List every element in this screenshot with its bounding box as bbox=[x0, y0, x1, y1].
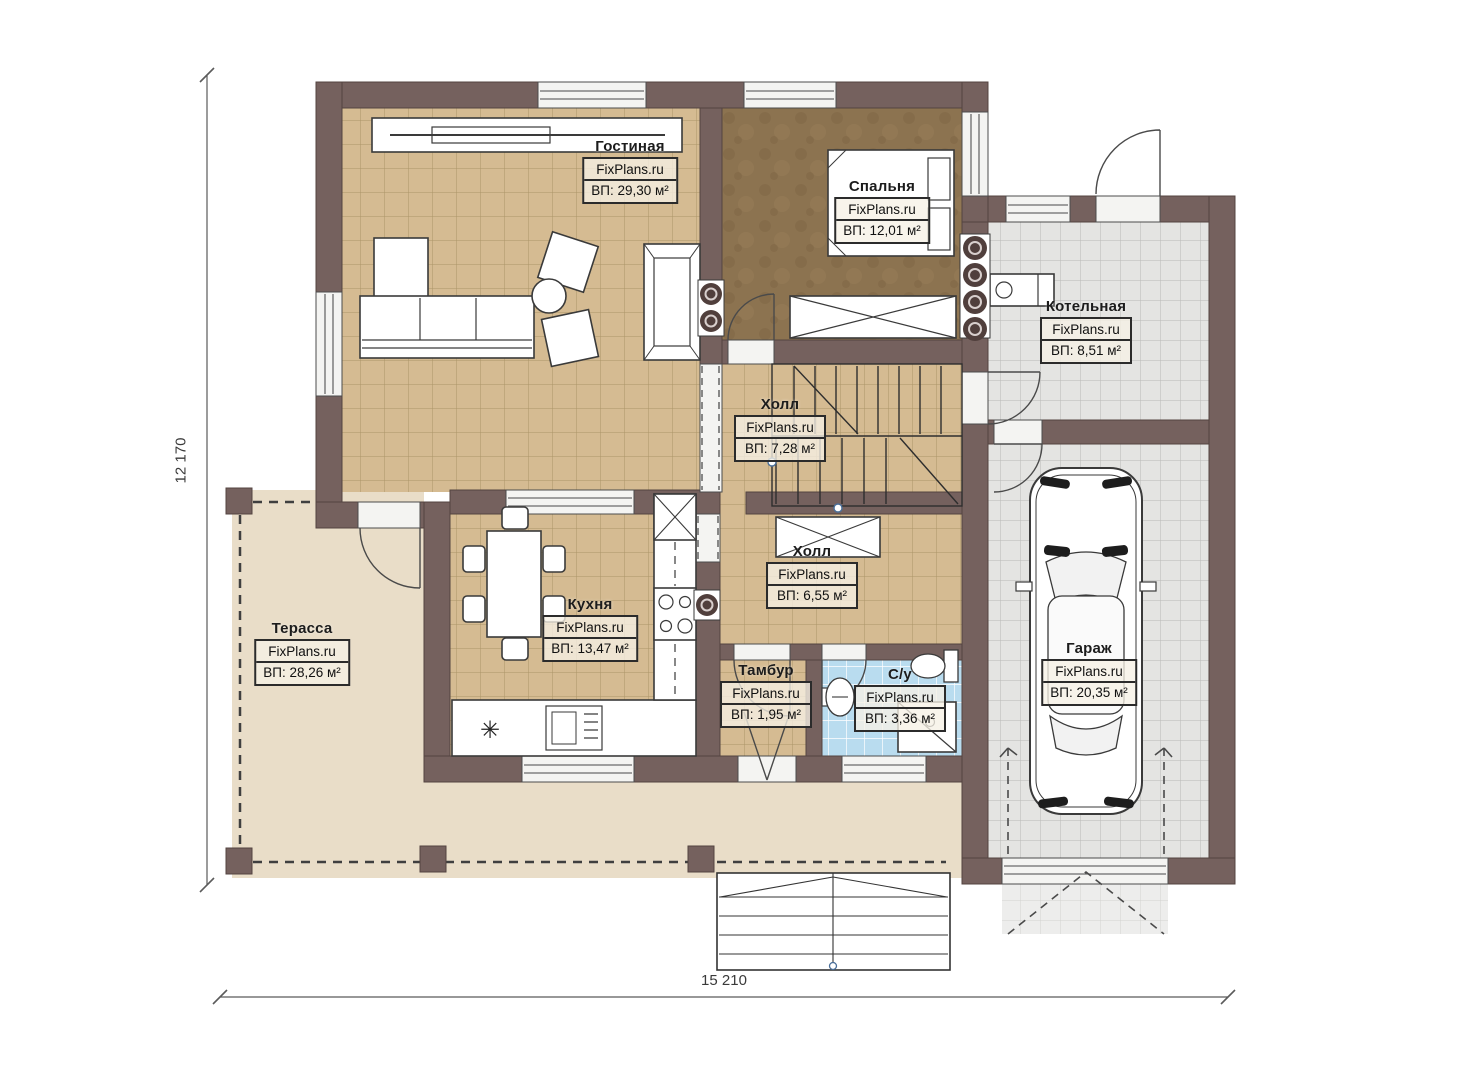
room-label-garage: Гараж FixPlans.ru ВП: 20,35 м² bbox=[1041, 640, 1137, 706]
room-label-vestibule: Тамбур FixPlans.ru ВП: 1,95 м² bbox=[720, 662, 812, 728]
room-label-bathroom: С/у FixPlans.ru ВП: 3,36 м² bbox=[854, 666, 946, 732]
room-name: Терасса bbox=[254, 620, 350, 637]
room-area: ВП: 12,01 м² bbox=[836, 221, 928, 242]
watermark: FixPlans.ru bbox=[1042, 319, 1130, 341]
watermark: FixPlans.ru bbox=[768, 564, 856, 586]
fireplace bbox=[644, 244, 700, 360]
room-area: ВП: 1,95 м² bbox=[722, 705, 810, 726]
watermark: FixPlans.ru bbox=[856, 687, 944, 709]
window bbox=[316, 292, 342, 396]
floor-plan-page: ✳ bbox=[0, 0, 1473, 1080]
room-area: ВП: 6,55 м² bbox=[768, 586, 856, 607]
window bbox=[962, 112, 988, 196]
terrace-door-opening bbox=[358, 502, 420, 528]
room-area: ВП: 8,51 м² bbox=[1042, 341, 1130, 362]
height-dimension-label: 12 170 bbox=[172, 438, 189, 484]
stove bbox=[654, 588, 696, 640]
room-name: Спальня bbox=[834, 178, 930, 195]
window bbox=[522, 756, 634, 782]
garage-apron bbox=[1002, 884, 1168, 934]
room-name: Холл bbox=[766, 543, 858, 560]
room-name: Гостиная bbox=[582, 138, 678, 155]
window bbox=[1006, 196, 1070, 222]
sink-icon: ✳ bbox=[480, 717, 500, 744]
flue-stack bbox=[960, 234, 990, 341]
vestibule-door-opening bbox=[734, 644, 790, 660]
room-name: Тамбур bbox=[720, 662, 812, 679]
room-label-bedroom: Спальня FixPlans.ru ВП: 12,01 м² bbox=[834, 178, 930, 244]
watermark: FixPlans.ru bbox=[736, 417, 824, 439]
window bbox=[538, 82, 646, 108]
window bbox=[842, 756, 926, 782]
room-name: Котельная bbox=[1040, 298, 1132, 315]
garage-door-opening bbox=[1002, 858, 1168, 884]
watermark: FixPlans.ru bbox=[544, 617, 636, 639]
flue-pair bbox=[698, 280, 724, 336]
room-label-kitchen: Кухня FixPlans.ru ВП: 13,47 м² bbox=[542, 596, 638, 662]
window bbox=[744, 82, 836, 108]
boiler-garage-door-opening bbox=[994, 420, 1042, 444]
flue-single bbox=[694, 590, 720, 620]
watermark: FixPlans.ru bbox=[836, 199, 928, 221]
terrace-post bbox=[226, 488, 252, 514]
width-dimension-label: 15 210 bbox=[701, 972, 747, 989]
terrace-post bbox=[226, 848, 252, 874]
terrace-post bbox=[420, 846, 446, 872]
room-area: ВП: 7,28 м² bbox=[736, 439, 824, 460]
room-area: ВП: 28,26 м² bbox=[256, 663, 348, 684]
room-name: С/у bbox=[854, 666, 946, 683]
room-label-boiler: Котельная FixPlans.ru ВП: 8,51 м² bbox=[1040, 298, 1132, 364]
watermark: FixPlans.ru bbox=[584, 159, 676, 181]
entry-steps bbox=[717, 873, 950, 970]
entry-door-opening bbox=[1096, 196, 1160, 222]
room-label-hall-upper: Холл FixPlans.ru ВП: 7,28 м² bbox=[734, 396, 826, 462]
watermark: FixPlans.ru bbox=[1043, 661, 1135, 683]
room-label-terrace: Терасса FixPlans.ru ВП: 28,26 м² bbox=[254, 620, 350, 686]
floor-plan-drawing: ✳ bbox=[0, 0, 1473, 1080]
bedroom-door-opening bbox=[728, 340, 774, 364]
room-name: Гараж bbox=[1041, 640, 1137, 657]
hall-boiler-door-opening bbox=[962, 372, 988, 424]
room-area: ВП: 13,47 м² bbox=[544, 639, 636, 660]
kitchen-tall-units bbox=[654, 494, 696, 700]
room-area: ВП: 20,35 м² bbox=[1043, 683, 1135, 704]
bathroom-door-opening bbox=[822, 644, 866, 660]
room-label-living: Гостиная FixPlans.ru ВП: 29,30 м² bbox=[582, 138, 678, 204]
room-area: ВП: 29,30 м² bbox=[584, 181, 676, 202]
coffee-table bbox=[532, 279, 566, 313]
open-passage bbox=[696, 514, 720, 562]
room-area: ВП: 3,36 м² bbox=[856, 709, 944, 730]
wardrobe bbox=[790, 296, 956, 338]
room-label-hall-lower: Холл FixPlans.ru ВП: 6,55 м² bbox=[766, 543, 858, 609]
terrace-post bbox=[688, 846, 714, 872]
watermark: FixPlans.ru bbox=[256, 641, 348, 663]
room-name: Холл bbox=[734, 396, 826, 413]
room-name: Кухня bbox=[542, 596, 638, 613]
watermark: FixPlans.ru bbox=[722, 683, 810, 705]
